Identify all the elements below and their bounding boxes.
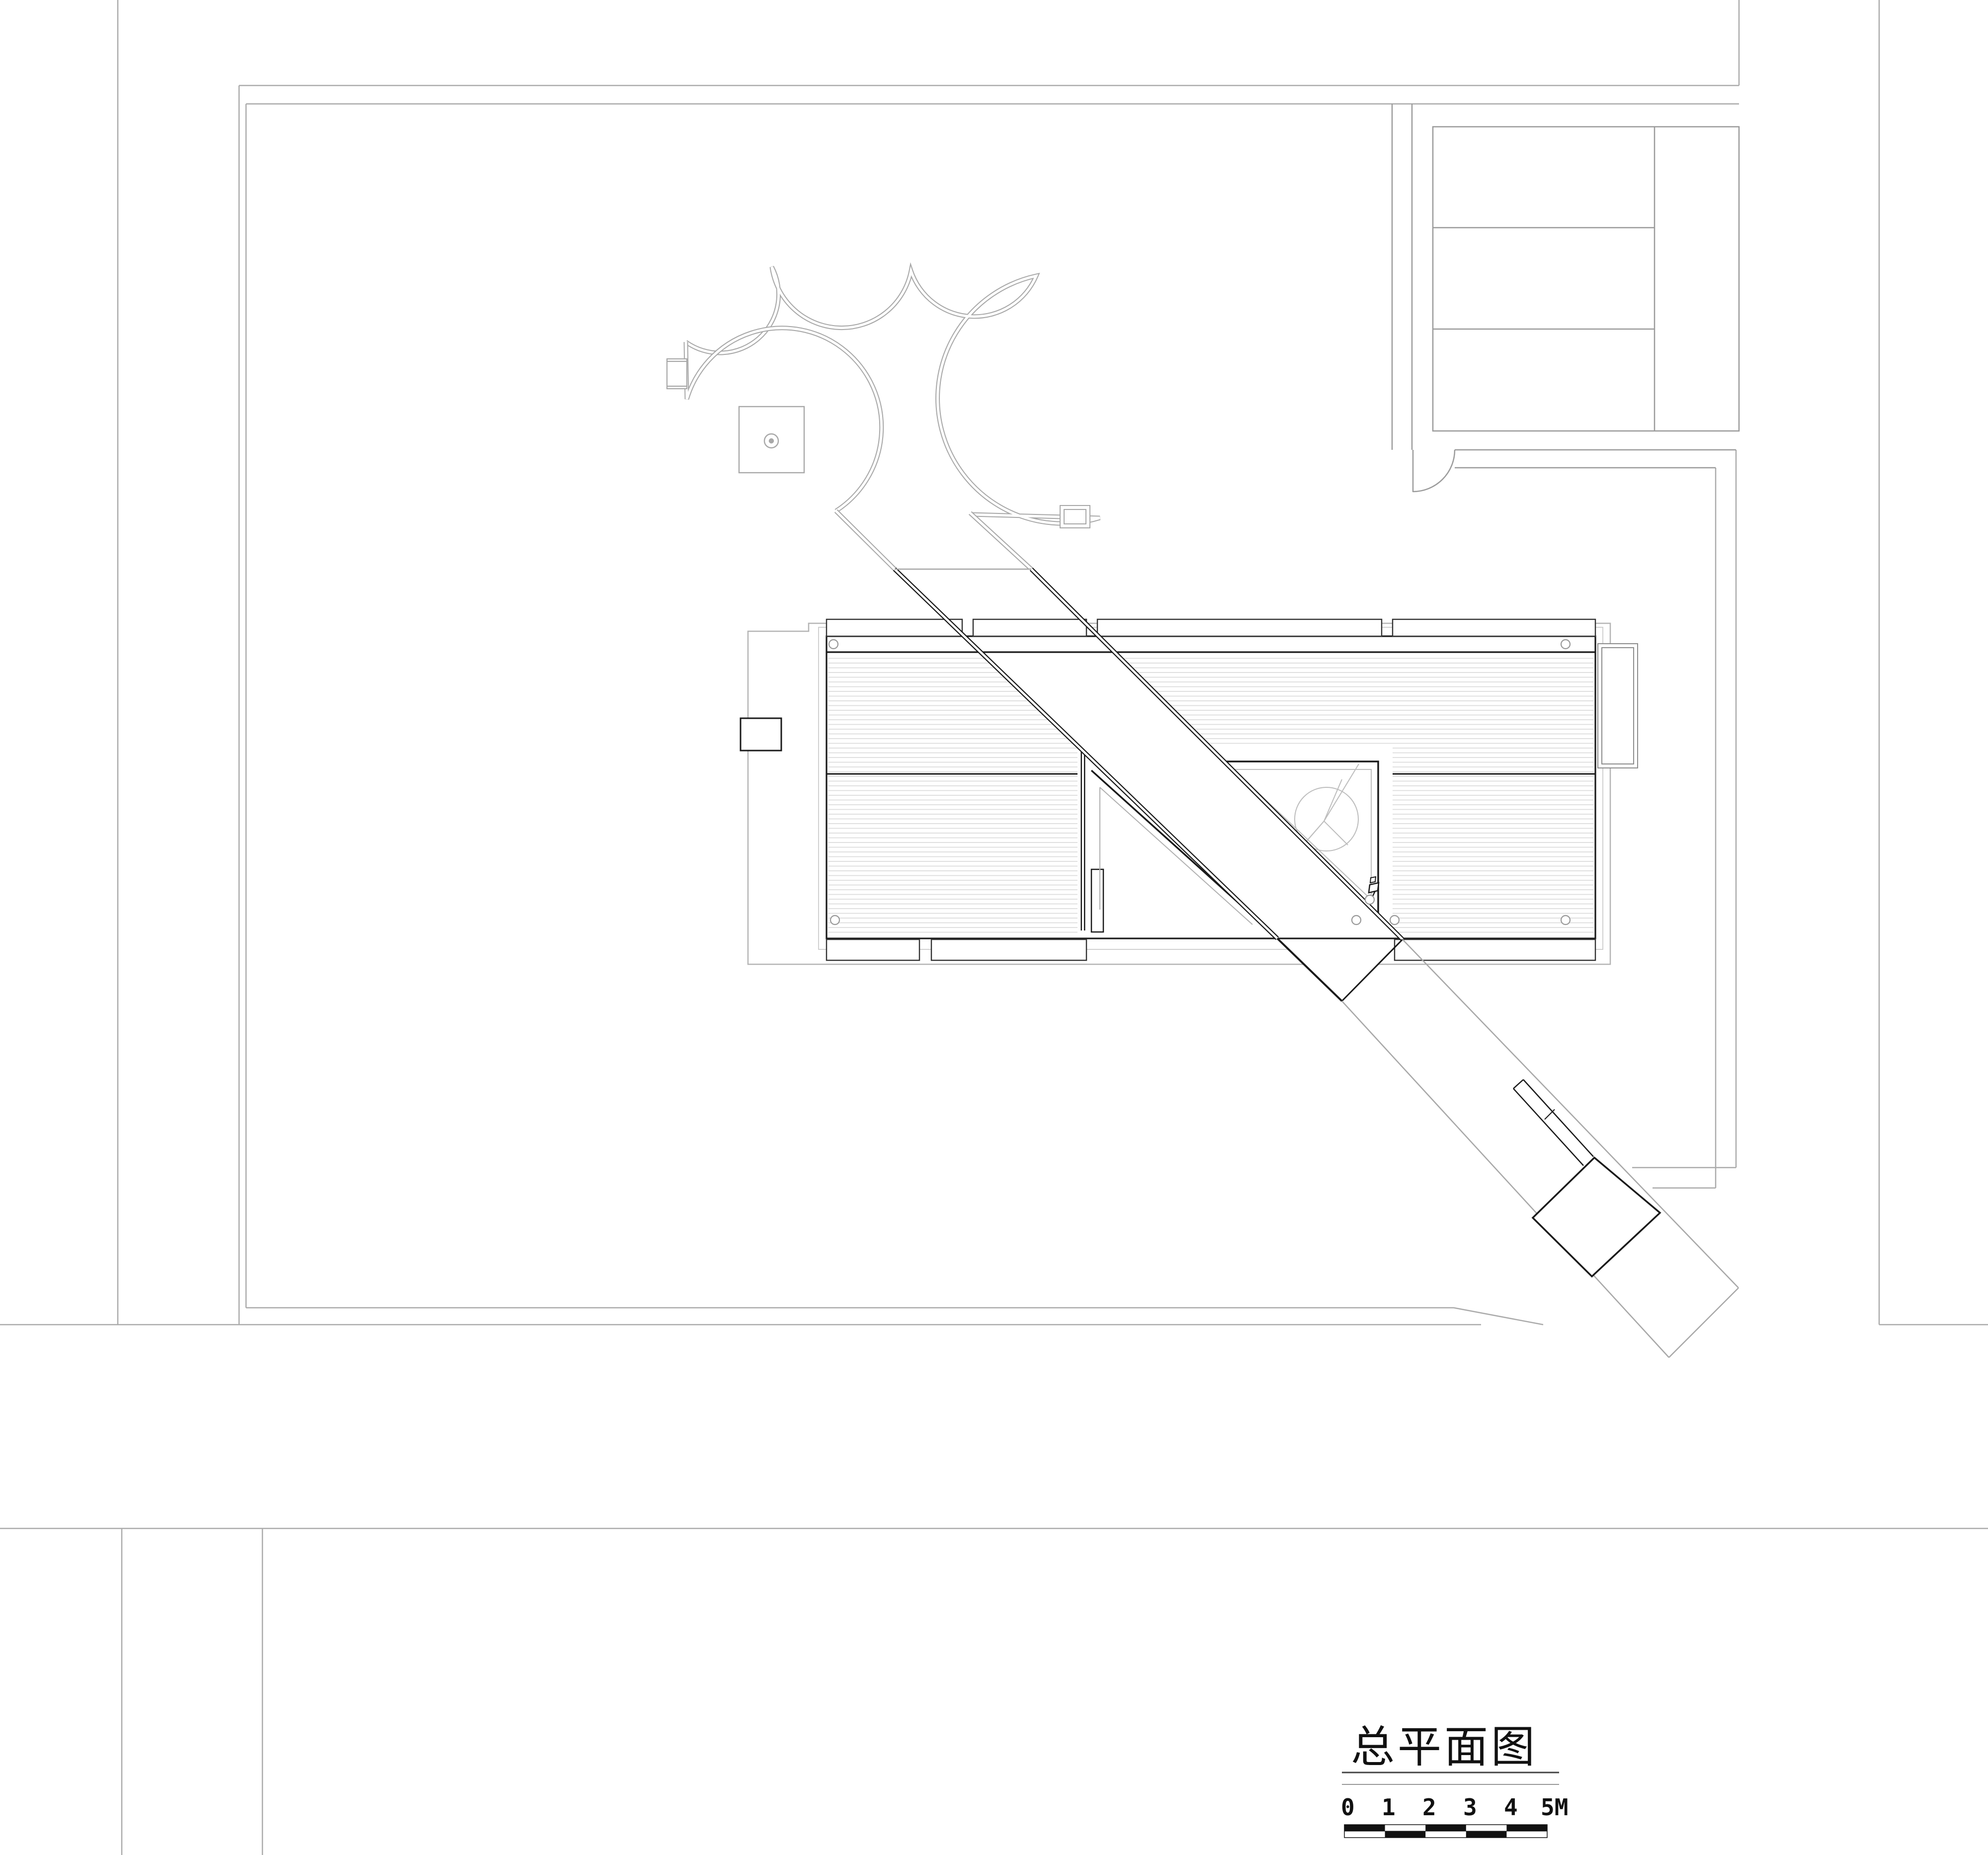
scale-bar: 0 1 2 3 4 5M (1341, 1794, 1568, 1838)
upper-ramp (836, 511, 1031, 569)
scale-label-4: 4 (1504, 1794, 1518, 1821)
ramp-side-strip (1513, 1080, 1593, 1166)
scale-label-5: 5M (1541, 1794, 1568, 1821)
cloud-core-square (739, 407, 804, 473)
scale-label-0: 0 (1341, 1794, 1355, 1821)
cloud-pavilion (667, 267, 1100, 528)
deck-building (741, 569, 1638, 1001)
scale-bar-stripes (1344, 1825, 1547, 1838)
site-plan-canvas: 总平面图 0 1 2 3 4 5M (0, 0, 1988, 1855)
title-block: 总平面图 (1342, 1724, 1559, 1784)
scale-label-1: 1 (1382, 1794, 1396, 1821)
top-wall-panels (827, 619, 1595, 636)
landing-platform (1533, 1158, 1660, 1276)
cloud-west-notch (667, 359, 687, 389)
scale-label-3: 3 (1463, 1794, 1477, 1821)
page-title: 总平面图 (1351, 1724, 1538, 1772)
east-protrusion (1598, 644, 1638, 768)
door-swing-icon (1413, 450, 1455, 492)
neighbor-room-block (1392, 104, 1739, 492)
scale-label-2: 2 (1422, 1794, 1436, 1821)
cloud-south-stub (1060, 506, 1090, 528)
site-plan-sheet: 总平面图 0 1 2 3 4 5M (0, 0, 1988, 1855)
lower-ramp (1342, 939, 1739, 1357)
west-annex (741, 718, 781, 751)
